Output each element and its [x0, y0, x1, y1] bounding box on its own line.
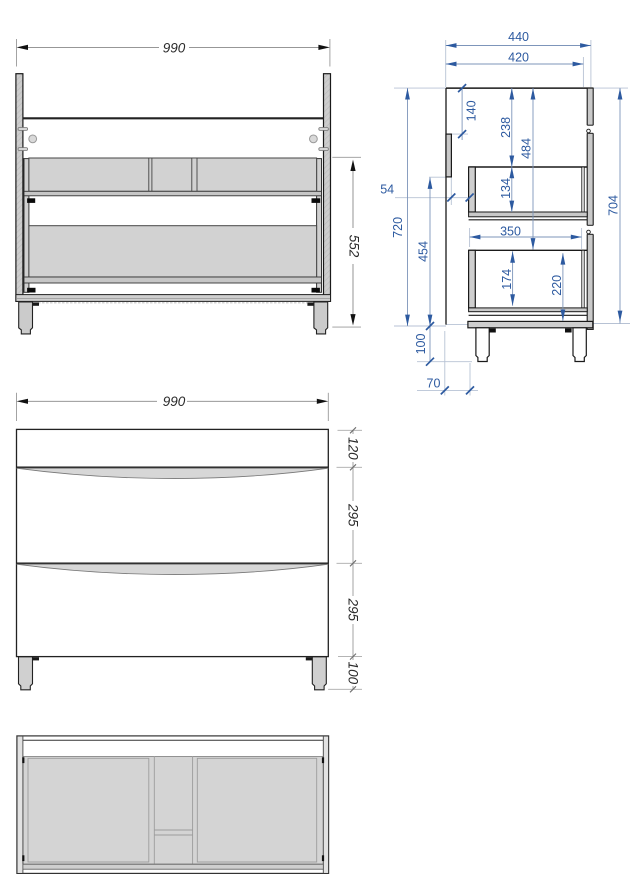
svg-text:990: 990: [163, 394, 186, 409]
svg-text:238: 238: [499, 117, 513, 138]
svg-text:704: 704: [607, 195, 621, 216]
svg-text:350: 350: [500, 224, 521, 238]
svg-text:220: 220: [550, 275, 564, 296]
svg-text:54: 54: [380, 183, 394, 197]
svg-text:440: 440: [508, 30, 529, 44]
svg-text:140: 140: [465, 100, 479, 121]
svg-text:720: 720: [391, 217, 405, 238]
svg-text:174: 174: [500, 269, 514, 290]
svg-text:295: 295: [346, 503, 361, 527]
svg-text:420: 420: [508, 50, 529, 64]
svg-text:295: 295: [346, 598, 361, 622]
svg-text:552: 552: [347, 235, 362, 258]
svg-text:100: 100: [346, 662, 361, 685]
svg-text:134: 134: [499, 178, 513, 199]
svg-text:120: 120: [346, 437, 361, 460]
svg-text:484: 484: [520, 138, 534, 159]
svg-text:70: 70: [427, 376, 441, 390]
svg-text:990: 990: [163, 40, 186, 55]
svg-text:454: 454: [417, 241, 431, 262]
svg-text:100: 100: [414, 334, 428, 355]
